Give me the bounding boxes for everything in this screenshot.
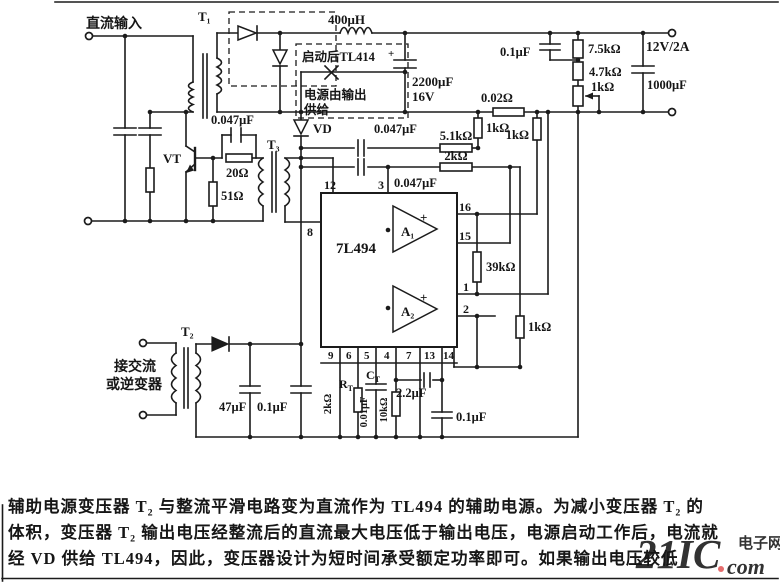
pin13-label: 13 — [424, 350, 436, 362]
chip-name: 7L494 — [336, 241, 377, 257]
r75-label: 7.5kΩ — [588, 42, 621, 56]
pin5-label: 5 — [364, 350, 370, 362]
pin4-label: 4 — [384, 350, 390, 362]
transformer-t2 — [172, 348, 201, 408]
dc-input-label: 直流输入 — [86, 15, 142, 32]
rectifier-dashed-box — [229, 12, 336, 86]
pin3-label: 3 — [378, 178, 384, 192]
ct-value: 0.01μF — [359, 397, 370, 428]
c047b-label: 0.047μF — [394, 176, 437, 190]
c47-label: 47μF — [219, 400, 247, 414]
watermark-dot — [718, 566, 724, 572]
aux-rectifier-diode — [212, 337, 229, 351]
r20-label: 20Ω — [226, 166, 249, 180]
rt-value: 2kΩ — [322, 394, 334, 415]
watermark-suffix: com — [727, 554, 765, 579]
caption-line3: 经 VD 供给 TL494，因此，变压器设计为短时间承受额定功率即可。如果输出电… — [8, 548, 678, 568]
r51-label: 51Ω — [221, 189, 244, 203]
ac-input-line2: 或逆变器 — [106, 376, 163, 393]
amp2-label: A₂ — [401, 304, 414, 319]
caption-line2: 体积，变压器 T₂ 输出电压经整流后的直流最大电压低于输出电压，电源启动工作后，… — [8, 522, 719, 542]
t3-label: T₃ — [267, 137, 280, 152]
r1-pot-label: 1kΩ — [591, 80, 614, 94]
r51k-label: 5.1kΩ — [440, 129, 473, 143]
transformer-t3 — [259, 152, 290, 212]
t1-label: T₁ — [198, 9, 211, 24]
amp1-plus: + — [420, 210, 427, 225]
c1000-label: 1000μF — [647, 78, 687, 92]
pin12-label: 12 — [324, 178, 336, 192]
vd-label: VD — [313, 121, 332, 136]
pin1-label: 1 — [463, 280, 469, 294]
circuit-schematic: 直流输入 T₁ 400μH 启动后TL414 电源由输出 供给 + 2200μF… — [0, 0, 780, 583]
annotation-line1: 启动后TL414 — [302, 49, 376, 64]
ic-tl494 — [321, 193, 457, 347]
r1c-label: 1kΩ — [528, 320, 551, 334]
r2k-label: 2kΩ — [444, 149, 467, 163]
c047c-label: 0.047μF — [211, 113, 254, 127]
c22-label: 2.2μF — [396, 386, 427, 400]
watermark-brand: 21IC — [635, 531, 721, 577]
pin9-label: 9 — [328, 350, 334, 362]
r47-label: 4.7kΩ — [589, 65, 622, 79]
diode-vd — [294, 120, 308, 136]
output-rating-label: 12V/2A — [646, 39, 690, 54]
ac-input-line1: 接交流 — [114, 358, 156, 375]
r10k-label: 10kΩ — [379, 398, 390, 423]
pin14-label: 14 — [443, 350, 455, 362]
t2-label: T₂ — [181, 324, 194, 339]
r002-label: 0.02Ω — [481, 91, 513, 105]
r1b-label: 1kΩ — [506, 128, 529, 142]
annotation-line2: 电源由输出 — [304, 87, 367, 102]
pin16-label: 16 — [459, 200, 471, 214]
caption-line1: 辅助电源变压器 T₂ 与整流平滑电路变为直流作为 TL494 的辅助电源。为减小… — [8, 496, 704, 516]
amp2-plus: + — [420, 290, 427, 305]
c2200-plus: + — [388, 48, 394, 60]
amp1-label: A₁ — [401, 224, 414, 239]
pin2-label: 2 — [463, 302, 469, 316]
pin6-label: 6 — [346, 350, 352, 362]
inductor-label: 400μH — [328, 12, 365, 27]
c2200-voltage: 16V — [412, 89, 435, 104]
ct-label: CT — [366, 368, 381, 384]
scanned-schematic-page: 直流输入 T₁ 400μH 启动后TL414 电源由输出 供给 + 2200μF… — [0, 0, 780, 583]
c2200-label: 2200μF — [412, 74, 453, 89]
caption-text: 辅助电源变压器 T₂ 与整流平滑电路变为直流作为 TL494 的辅助电源。为减小… — [8, 496, 719, 568]
r39k-label: 39kΩ — [486, 260, 515, 274]
c01-bot-label: 0.1μF — [456, 410, 487, 424]
watermark-cn: 电子网 — [738, 534, 780, 552]
c01-top-label: 0.1μF — [500, 45, 531, 59]
rectifier-diode-top — [238, 26, 257, 40]
vt-label: VT — [163, 151, 181, 166]
rt-label: RT — [339, 377, 354, 393]
c047a-label: 0.047μF — [374, 122, 417, 136]
pin7-label: 7 — [406, 350, 412, 362]
inductor-400uH — [340, 28, 372, 34]
pin15-label: 15 — [459, 229, 471, 243]
rectifier-diode-vertical — [273, 50, 287, 66]
pin8-label: 8 — [307, 225, 313, 239]
annotation-line3: 供给 — [303, 102, 330, 117]
c01-t2-label: 0.1μF — [257, 400, 288, 414]
watermark: 21IC 电子网 com — [635, 531, 780, 579]
